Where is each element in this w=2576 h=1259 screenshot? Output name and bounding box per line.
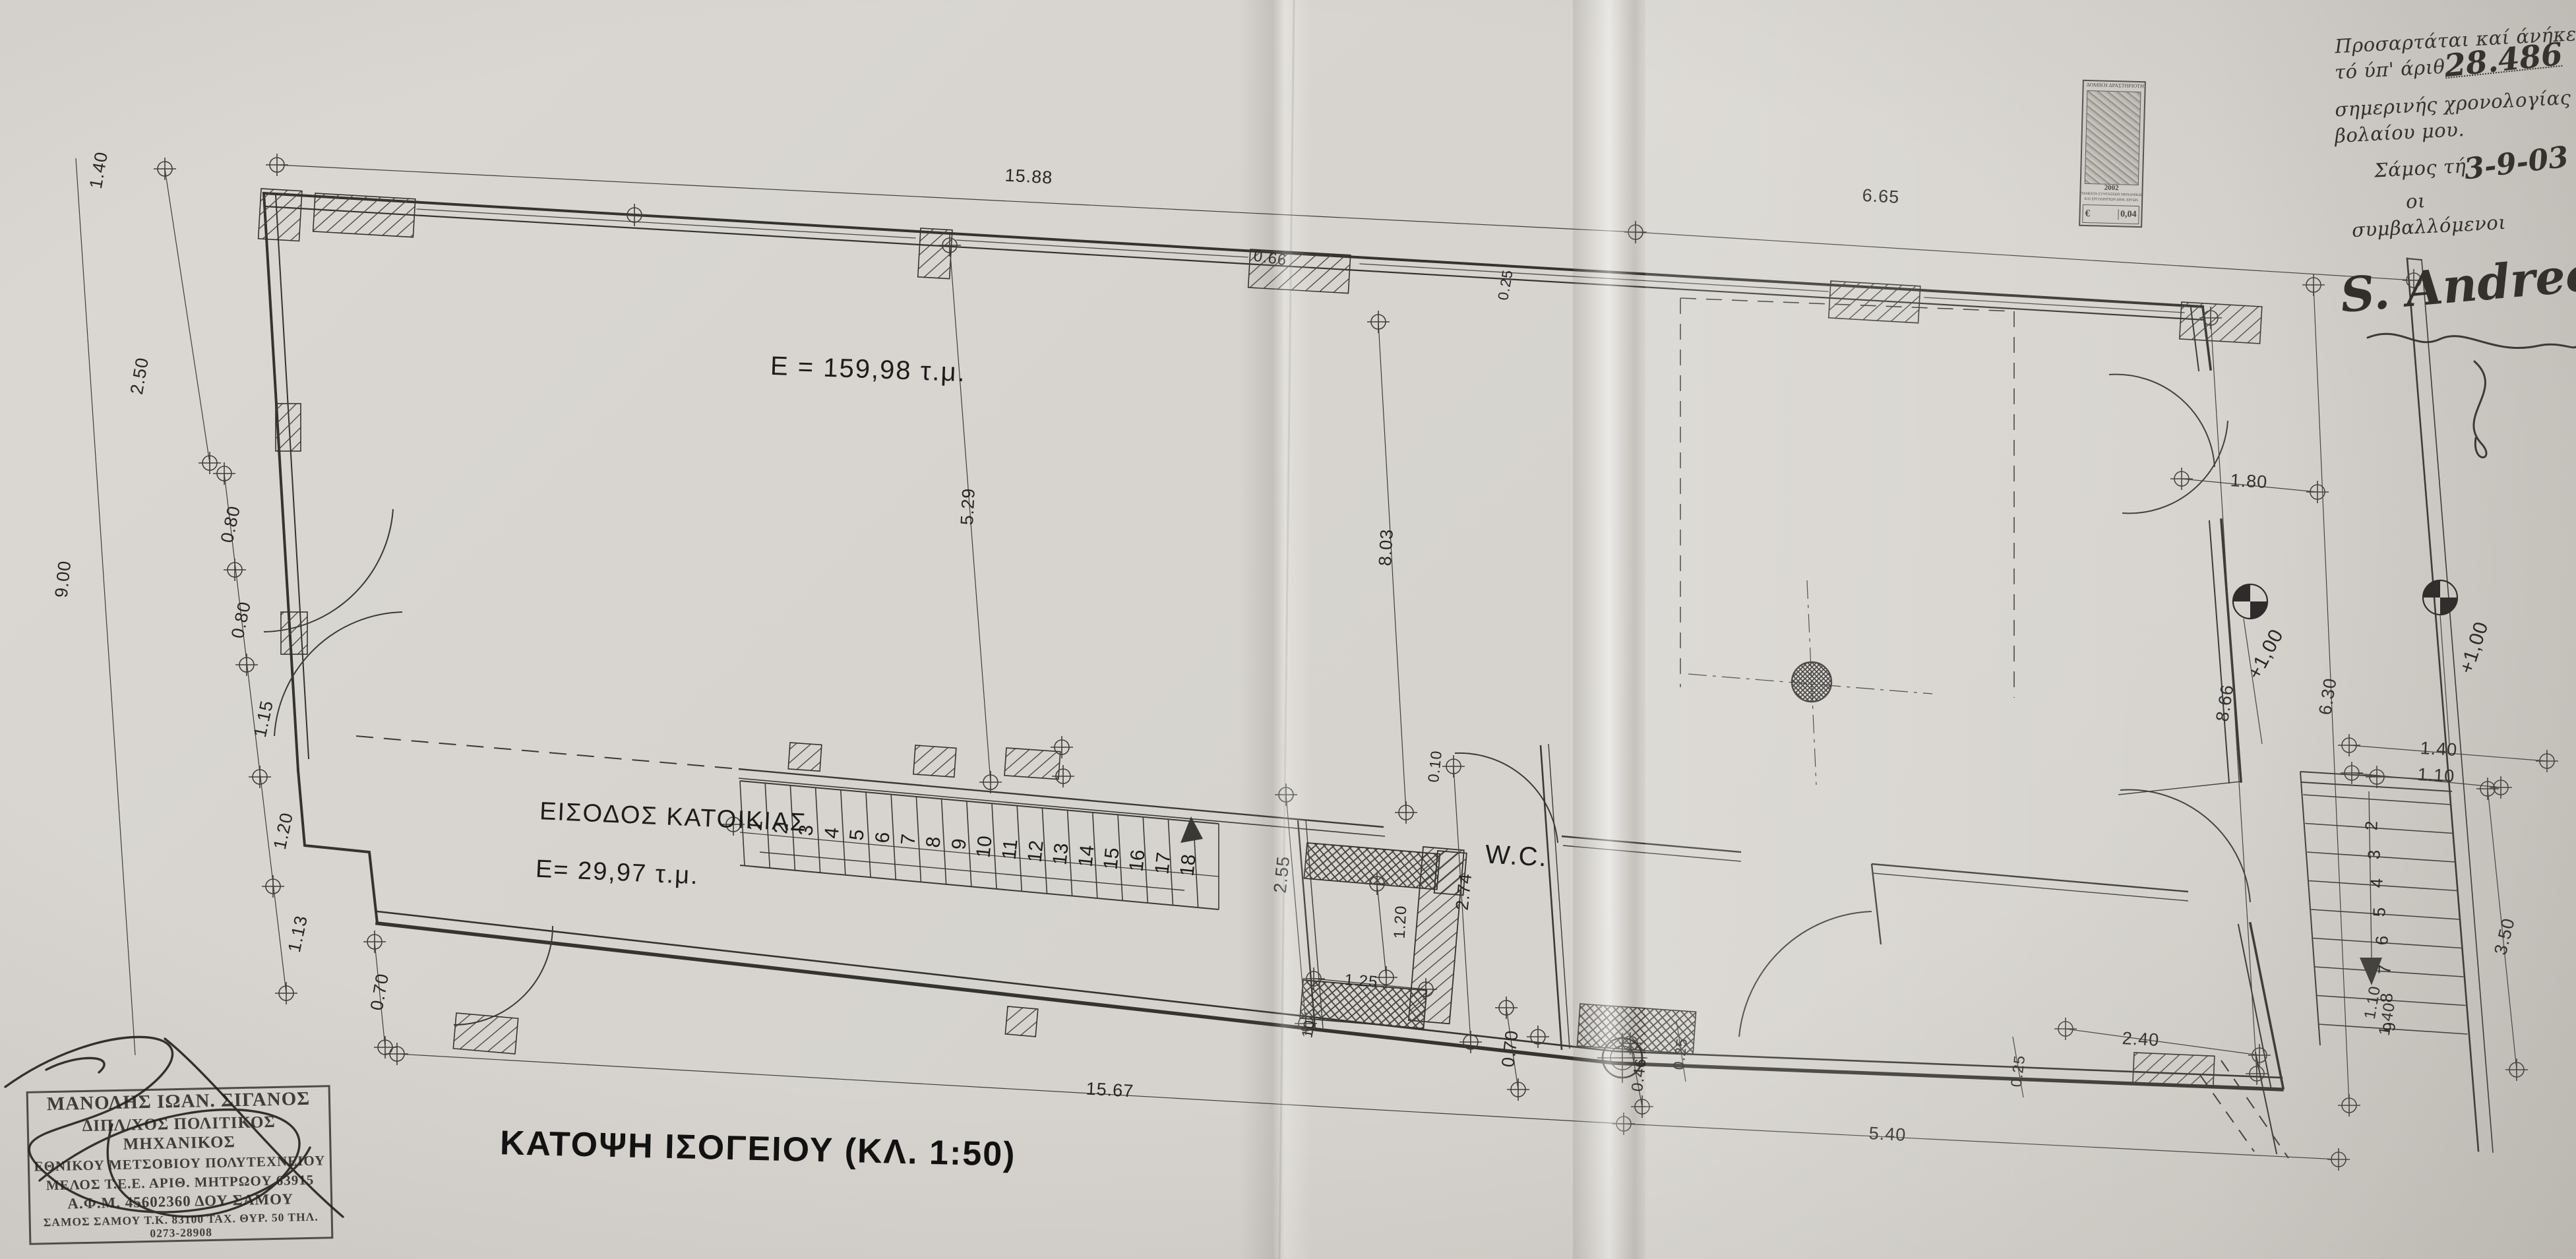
revenue-stamp-caption-2: ΚΑΙ ΕΡΓΟΛΗΠΤΩΝ ΔΗΜ. ΕΡΓΩΝ: [2081, 197, 2141, 202]
dimension-label: 6.65: [1862, 185, 1900, 208]
level-markers: [2233, 580, 2457, 619]
dimension-label: 2.40: [2122, 1028, 2160, 1051]
notary-line-6: οι: [2405, 189, 2426, 213]
stair-step-number: 8: [2377, 993, 2397, 1003]
dimension-label: 15.67: [1086, 1078, 1134, 1101]
dimension-label: 1.80: [2230, 470, 2268, 493]
interior-walls: [356, 0, 2288, 1259]
wc-label: W.C.: [1485, 840, 1549, 873]
dimension-label: 9.00: [51, 559, 76, 598]
columns: [259, 189, 2262, 1086]
stair-step-number: 5: [2369, 907, 2389, 917]
engineer-address: ΣΑΜΟΣ ΣΑΜΟΥ Τ.Κ. 83100 ΤΑΧ. ΘΥΡ. 50 ΤΗΛ.…: [31, 1210, 332, 1243]
stair-step-number: 14: [1074, 844, 1099, 869]
dimension-label: 8.03: [1375, 528, 1397, 567]
dimension-label: 5.29: [957, 487, 979, 526]
dimension-label: 1.20: [1391, 905, 1411, 939]
scanned-floor-plan-page: Ε = 159,98 τ.μ. ΕΙΣΟΔΟΣ ΚΑΤΟΙΚΙΑΣ Ε= 29,…: [0, 0, 2576, 1259]
revenue-stamp-value: 0,04: [2118, 209, 2137, 220]
stair-step-number: 13: [1049, 842, 1074, 866]
dimension-label: 2.74: [1452, 872, 1477, 911]
stair-step-number: 8: [922, 836, 946, 849]
revenue-stamp-value-bar: € 0,04: [2082, 204, 2139, 224]
dimension-label: 15.88: [1004, 165, 1053, 188]
stair-step-number: 6: [2372, 935, 2392, 946]
dimension-label: 10: [1298, 1018, 1318, 1039]
engineer-stamp: ΜΑΝΟΛΗΣ ΙΩΑΝ. ΣΙΓΑΝΟΣ ΔΙΠΛ/ΧΟΣ ΠΟΛΙΤΙΚΟΣ…: [26, 1085, 334, 1245]
euro-symbol: €: [2085, 208, 2090, 219]
stair-step-number: 1: [744, 819, 768, 832]
stair-step-number: 4: [820, 826, 844, 840]
revenue-stamp-image: [2085, 90, 2141, 185]
stair-step-number: 15: [1100, 846, 1124, 871]
dimension-label: 5.40: [1868, 1123, 1907, 1146]
dimension-label: 2.55: [1270, 855, 1295, 894]
stair-step-number: 2: [770, 821, 793, 834]
engineer-afm: Α.Φ.Μ. 45602360 ΔΟΥ ΣΑΜΟΥ: [30, 1190, 330, 1213]
dimension-label: 0.10: [1425, 749, 1446, 783]
door-arcs: [264, 375, 2250, 1037]
engineer-profession: ΔΙΠΛ/ΧΟΣ ΠΟΛΙΤΙΚΟΣ ΜΗΧΑΝΙΚΟΣ: [28, 1112, 329, 1156]
stair-step-number: 12: [1024, 840, 1048, 864]
stair-step-number: 10: [973, 835, 997, 859]
stair-step-number: 11: [998, 838, 1022, 861]
dimension-label: 1.40: [2420, 738, 2458, 760]
stair-step-number: 2: [2361, 820, 2381, 831]
revenue-stamp-header: ΔΟΜΙΚΗ ΔΡΑΣΤΗΡΙΟΤΗΣ: [2087, 82, 2146, 89]
revenue-stamp: ΔΟΜΙΚΗ ΔΡΑΣΤΗΡΙΟΤΗΣ 2002 ΤΑΜΕΙΟΝ ΣΥΝΤΑΞΕ…: [2079, 80, 2146, 228]
revenue-stamp-caption-1: ΤΑΜΕΙΟΝ ΣΥΝΤΑΞΕΩΝ ΜΗΧΑΝΙΚΩΝ: [2081, 192, 2141, 197]
dimension-label: 1.25: [1344, 971, 1379, 991]
wc-shaft: [1300, 843, 1467, 1029]
stair-step-number: 9: [2379, 1022, 2400, 1032]
stair-step-number: 16: [1125, 849, 1150, 873]
stair-step-number: 6: [871, 831, 895, 844]
stair-step-number: 18: [1177, 853, 1201, 878]
notary-place: Σάμος τή: [2374, 154, 2467, 181]
stair-step-number: 17: [1151, 851, 1175, 875]
floor-plan-drawing: [0, 0, 2576, 1259]
stair-step-number: 7: [2374, 964, 2395, 975]
engineer-name: ΜΑΝΟΛΗΣ ΙΩΑΝ. ΣΙΓΑΝΟΣ: [28, 1088, 329, 1116]
dimension-label: 1.10: [2417, 764, 2455, 787]
stair-step-number: 4: [2366, 878, 2387, 888]
stair-step-number: 3: [2364, 849, 2384, 860]
revenue-stamp-year: 2002: [2081, 183, 2141, 193]
stair-step-number: 3: [795, 824, 818, 837]
